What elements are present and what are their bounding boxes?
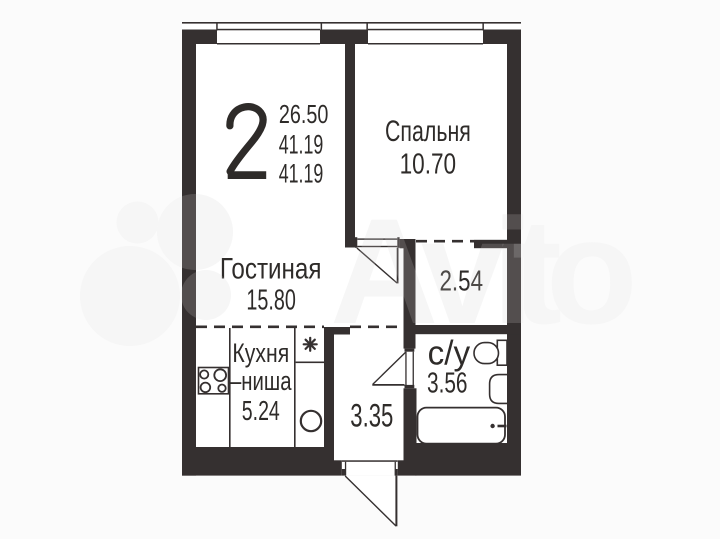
svg-text:Гостиная: Гостиная <box>220 252 322 285</box>
svg-text:Кухня: Кухня <box>232 338 289 368</box>
svg-text:3.35: 3.35 <box>350 397 393 433</box>
svg-text:5.24: 5.24 <box>242 395 280 426</box>
svg-text:41.19: 41.19 <box>279 129 324 159</box>
svg-text:Avito: Avito <box>330 187 638 355</box>
svg-text:26.50: 26.50 <box>279 99 329 129</box>
svg-text:–ниша: –ниша <box>230 366 292 396</box>
svg-text:Спальня: Спальня <box>385 116 471 148</box>
svg-text:10.70: 10.70 <box>400 148 457 180</box>
svg-text:3.56: 3.56 <box>427 368 468 400</box>
svg-text:15.80: 15.80 <box>246 284 296 316</box>
svg-text:41.19: 41.19 <box>279 158 324 188</box>
